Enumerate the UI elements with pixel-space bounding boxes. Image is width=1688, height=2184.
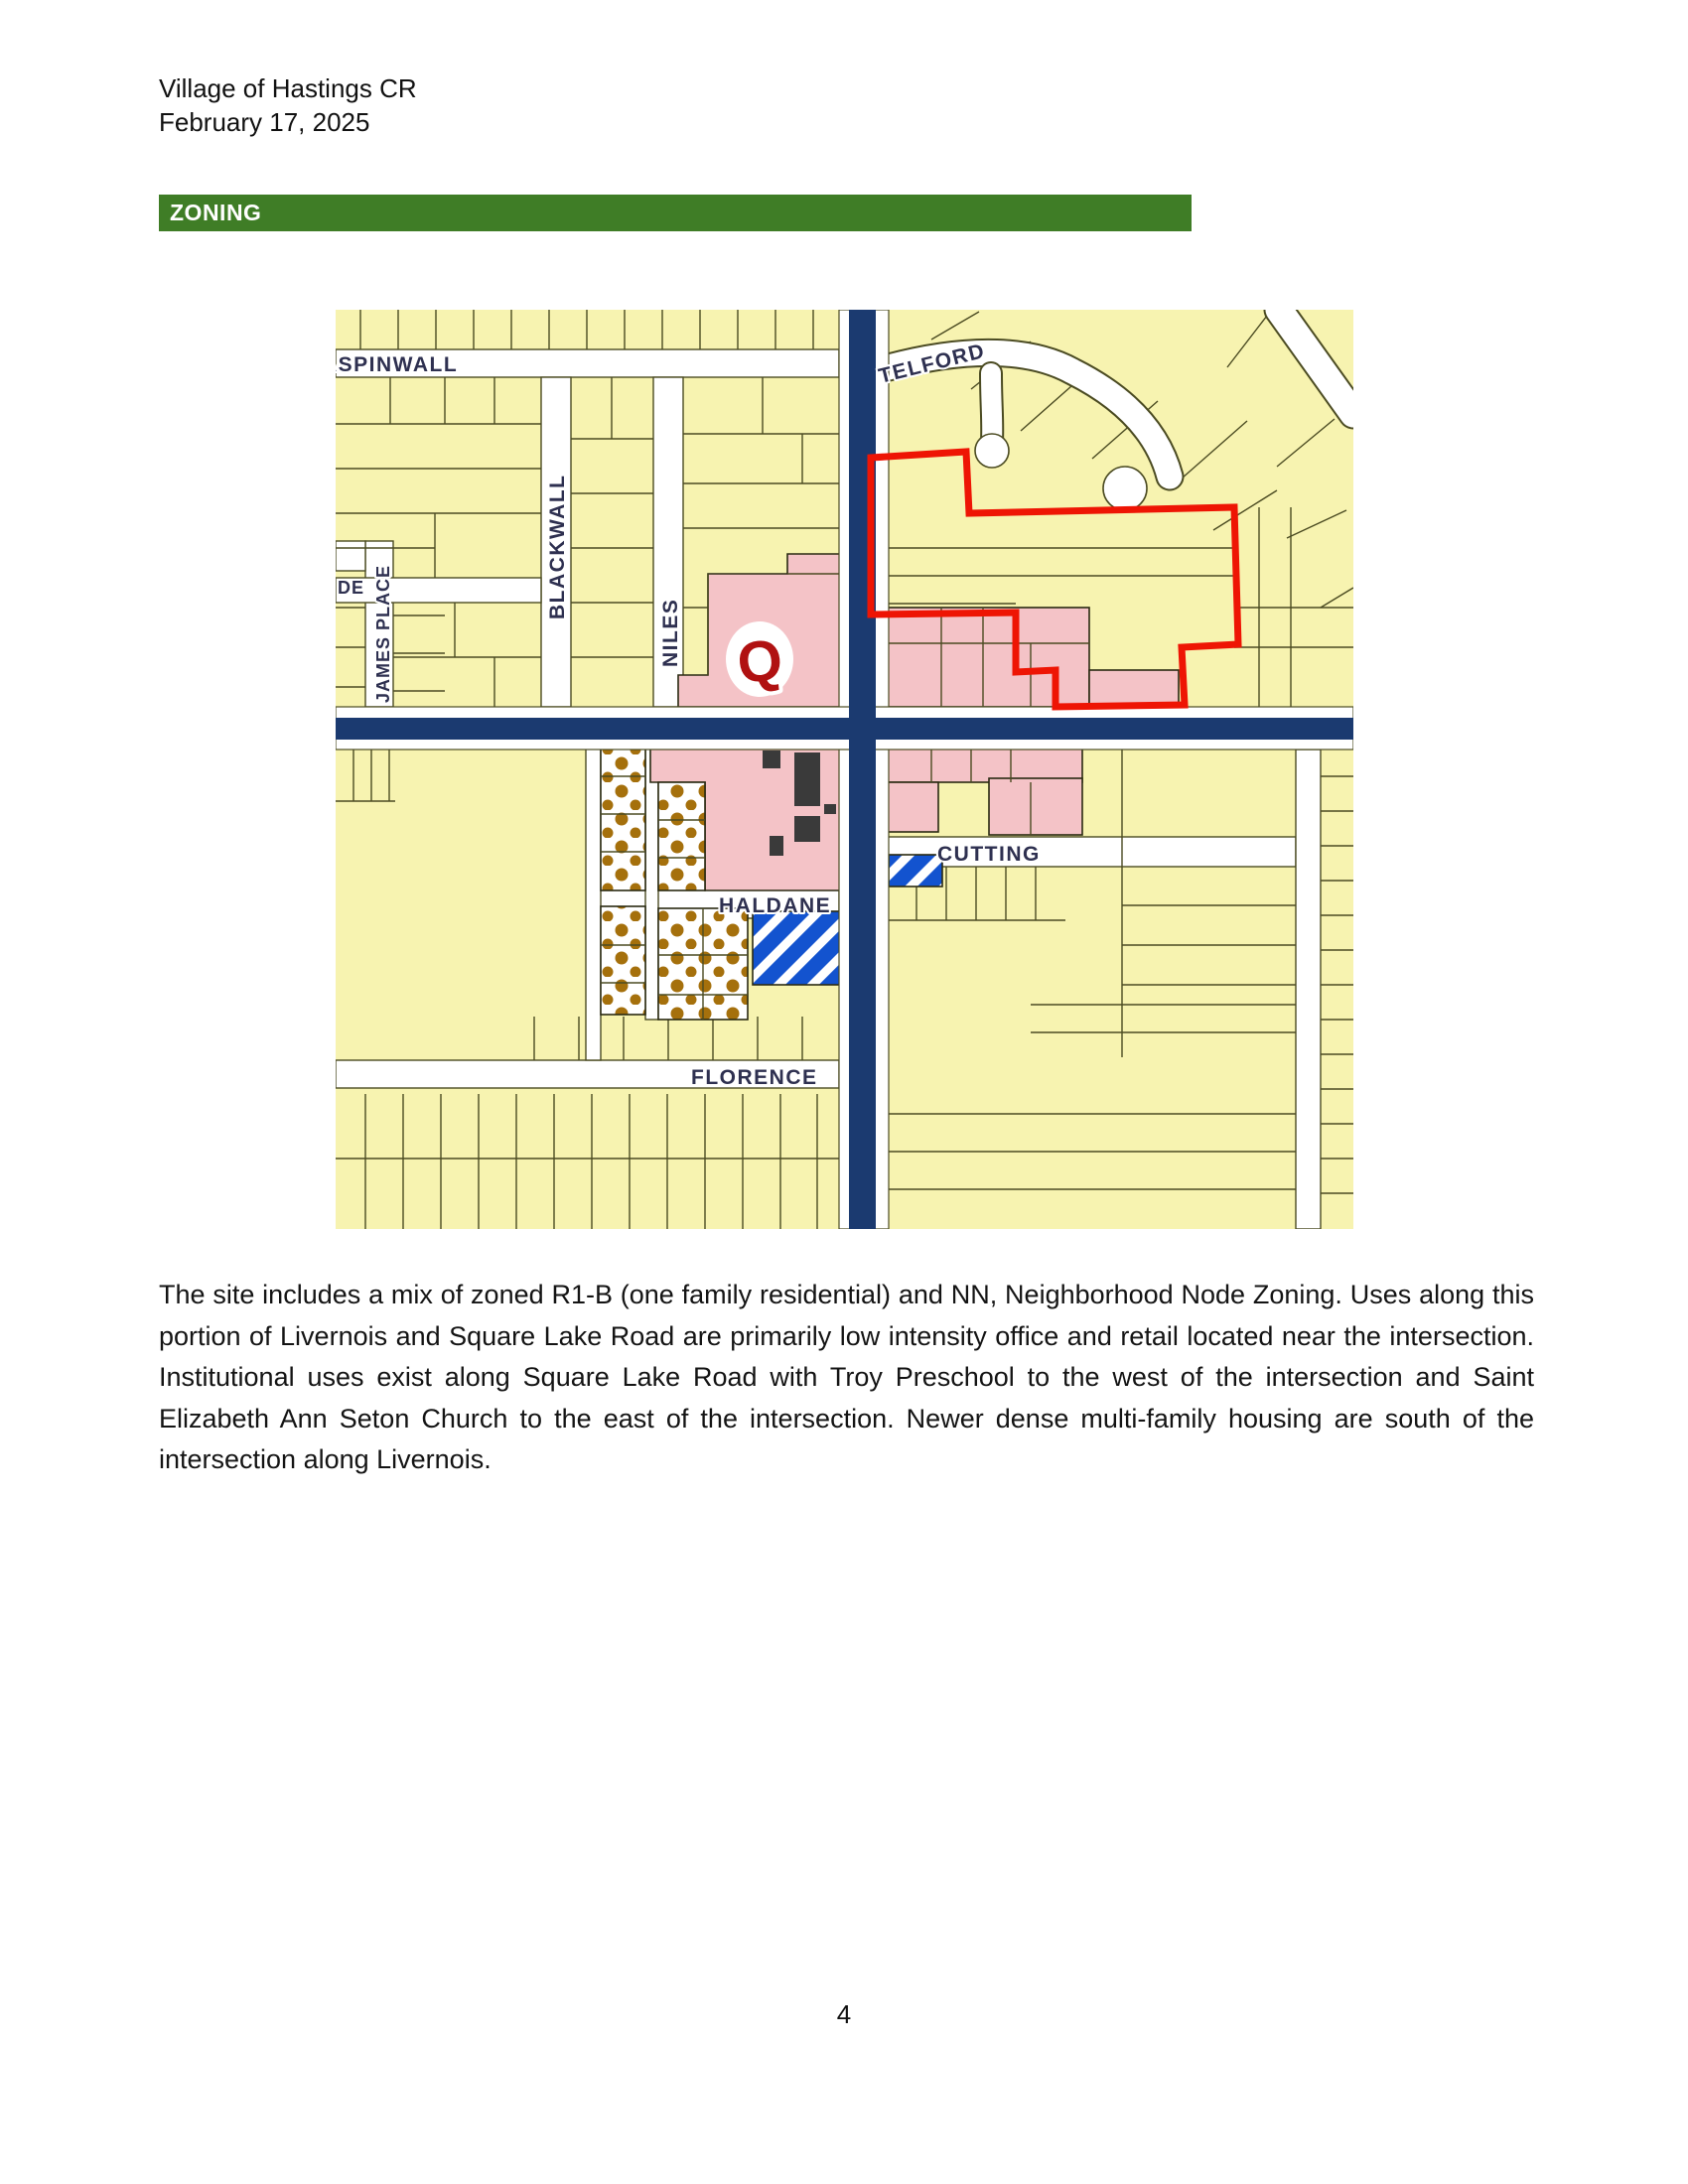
street-label-james-place: JAMES PLACE [373, 565, 393, 703]
header-date: February 17, 2025 [159, 105, 417, 139]
street-label-aspinwall: ASPINWALL [336, 353, 458, 376]
page-header: Village of Hastings CR February 17, 2025 [159, 71, 417, 139]
road-livernois [849, 310, 876, 1229]
street-label-de: DE [338, 578, 364, 598]
street-label-florence: FLORENCE [691, 1066, 818, 1089]
street-label-blackwall: BLACKWALL [546, 475, 569, 619]
header-title: Village of Hastings CR [159, 71, 417, 105]
body-paragraph: The site includes a mix of zoned R1-B (o… [159, 1275, 1534, 1481]
street-label-niles: NILES [659, 599, 682, 667]
q-zone-marker: Q [734, 627, 785, 696]
section-title: ZONING [159, 195, 1192, 231]
document-page: Village of Hastings CR February 17, 2025… [0, 0, 1688, 2184]
zoning-map-figure: ASPINWALL TELFORD BLACKWALL NILES JAMES … [336, 310, 1353, 1229]
street-label-haldane: HALDANE [719, 894, 831, 917]
page-number: 4 [0, 1999, 1688, 2030]
street-label-cutting: CUTTING [937, 843, 1041, 866]
zoning-map: ASPINWALL TELFORD BLACKWALL NILES JAMES … [336, 310, 1353, 1229]
section-banner: ZONING [159, 195, 1192, 231]
road-square-lake [336, 718, 1353, 740]
